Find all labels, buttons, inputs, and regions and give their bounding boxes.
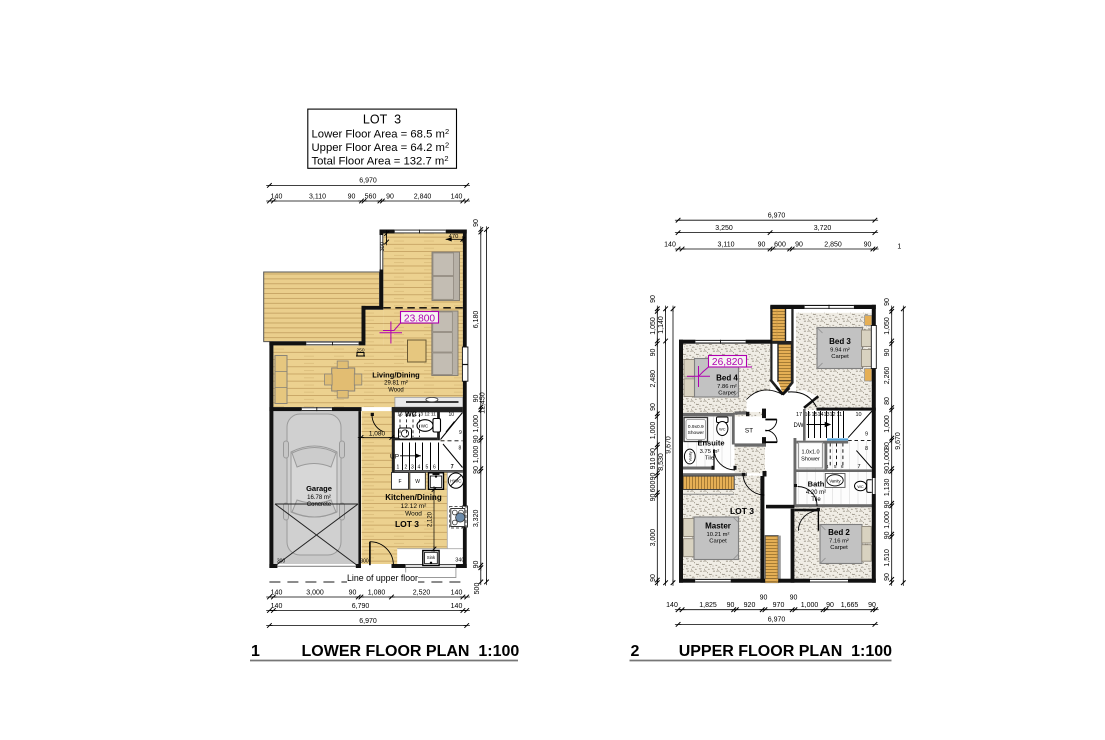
svg-text:W: W: [415, 479, 420, 485]
svg-text:140: 140: [271, 603, 283, 610]
svg-text:910: 910: [650, 458, 657, 470]
svg-text:1,080: 1,080: [368, 589, 386, 596]
svg-text:90: 90: [758, 241, 766, 248]
svg-text:1,140: 1,140: [658, 316, 665, 334]
svg-text:10: 10: [856, 412, 862, 418]
svg-text:90: 90: [826, 602, 834, 609]
svg-text:15: 15: [405, 412, 411, 417]
svg-text:140: 140: [451, 589, 463, 596]
svg-text:90: 90: [650, 448, 657, 456]
svg-text:3,250: 3,250: [715, 225, 733, 232]
svg-text:HWC: HWC: [450, 479, 462, 485]
svg-text:90: 90: [349, 589, 357, 596]
svg-text:90: 90: [884, 466, 891, 474]
svg-text:9: 9: [459, 430, 462, 436]
svg-text:2,120: 2,120: [427, 511, 433, 527]
svg-text:6,970: 6,970: [768, 212, 786, 219]
svg-text:90: 90: [650, 403, 657, 411]
svg-text:8: 8: [459, 446, 462, 452]
svg-text:9: 9: [865, 432, 868, 438]
svg-text:90: 90: [884, 349, 891, 357]
svg-text:2,850: 2,850: [824, 241, 842, 248]
svg-text:3: 3: [411, 465, 414, 471]
svg-text:2: 2: [405, 465, 408, 471]
svg-text:90: 90: [650, 473, 657, 481]
svg-text:600: 600: [774, 241, 786, 248]
svg-text:1,050: 1,050: [884, 317, 891, 335]
svg-text:300: 300: [277, 559, 286, 565]
svg-text:11: 11: [837, 412, 843, 418]
svg-text:1,000: 1,000: [884, 511, 891, 529]
svg-text:1,050: 1,050: [650, 317, 657, 335]
svg-text:26,820: 26,820: [712, 357, 743, 368]
svg-text:2,480: 2,480: [650, 370, 657, 388]
svg-text:300: 300: [380, 242, 386, 251]
svg-text:3,000: 3,000: [306, 589, 324, 596]
svg-text:Wood: Wood: [388, 388, 404, 394]
svg-text:3.75 m²: 3.75 m²: [700, 449, 720, 455]
svg-text:1,000: 1,000: [884, 415, 891, 433]
svg-text:Upper Floor Area = 64.2 m2: Upper Floor Area = 64.2 m2: [312, 141, 450, 155]
svg-text:Shower: Shower: [801, 457, 820, 463]
svg-text:600: 600: [650, 481, 657, 493]
svg-text:Concrete: Concrete: [307, 502, 332, 508]
svg-text:Line of upper floor: Line of upper floor: [347, 573, 418, 583]
svg-text:13: 13: [418, 412, 424, 417]
svg-text:WC: WC: [857, 485, 864, 489]
svg-text:80: 80: [884, 397, 891, 405]
svg-text:1,000: 1,000: [884, 448, 891, 466]
svg-text:29.81 m²: 29.81 m²: [384, 381, 408, 387]
svg-text:LOT 3: LOT 3: [363, 113, 401, 127]
svg-text:560: 560: [365, 193, 377, 200]
svg-text:Kitchen/Dining: Kitchen/Dining: [385, 493, 442, 502]
svg-text:6,970: 6,970: [768, 617, 786, 624]
svg-text:Sink: Sink: [427, 555, 436, 560]
svg-text:Lower Floor Area = 68.5 m2: Lower Floor Area = 68.5 m2: [312, 127, 450, 141]
svg-text:UP: UP: [390, 454, 399, 461]
svg-text:1: 1: [251, 643, 260, 660]
svg-text:UPPER FLOOR PLAN 1:100: UPPER FLOOR PLAN 1:100: [679, 643, 892, 660]
svg-text:Carpet: Carpet: [830, 545, 848, 551]
svg-text:140: 140: [451, 603, 463, 610]
svg-text:9,670: 9,670: [666, 436, 673, 454]
svg-text:500: 500: [474, 583, 481, 595]
svg-text:90: 90: [650, 295, 657, 303]
svg-text:4.20 m²: 4.20 m²: [806, 490, 826, 496]
svg-text:8,530: 8,530: [658, 453, 665, 471]
svg-text:12,450: 12,450: [479, 392, 486, 414]
svg-text:4: 4: [418, 465, 421, 471]
svg-text:3,320: 3,320: [473, 510, 480, 528]
svg-text:340: 340: [455, 558, 464, 564]
svg-text:1: 1: [397, 465, 400, 471]
svg-text:Garage: Garage: [306, 484, 332, 493]
svg-text:Living/Dining: Living/Dining: [372, 371, 420, 380]
svg-text:LOT 3: LOT 3: [395, 519, 419, 529]
svg-text:Shower: Shower: [688, 430, 705, 436]
svg-text:140: 140: [271, 589, 283, 596]
svg-text:ST: ST: [745, 428, 753, 435]
svg-text:1,665: 1,665: [841, 602, 859, 609]
svg-text:11: 11: [431, 412, 436, 417]
svg-text:6,970: 6,970: [359, 178, 377, 185]
svg-text:WC: WC: [719, 427, 726, 431]
svg-text:470: 470: [449, 234, 459, 240]
svg-text:90: 90: [884, 531, 891, 539]
svg-text:8: 8: [865, 446, 868, 452]
svg-text:6,790: 6,790: [352, 603, 370, 610]
svg-text:16.78 m²: 16.78 m²: [307, 495, 331, 501]
svg-text:90: 90: [864, 241, 872, 248]
svg-text:Tile: Tile: [811, 497, 821, 503]
svg-text:2: 2: [631, 643, 640, 660]
svg-text:7: 7: [858, 464, 861, 470]
svg-text:Bath: Bath: [808, 480, 825, 489]
svg-text:1,825: 1,825: [699, 602, 717, 609]
svg-text:3,110: 3,110: [718, 241, 735, 248]
svg-text:6: 6: [433, 465, 436, 471]
svg-text:970: 970: [773, 602, 785, 609]
svg-text:Wood: Wood: [405, 511, 422, 518]
svg-text:9,670: 9,670: [895, 432, 902, 450]
svg-text:3,000: 3,000: [650, 529, 657, 547]
svg-text:Master: Master: [705, 522, 731, 531]
svg-text:140: 140: [666, 602, 678, 609]
svg-text:12: 12: [425, 412, 431, 417]
svg-text:1,080: 1,080: [369, 431, 386, 438]
svg-text:1,130: 1,130: [884, 478, 891, 496]
svg-text:1: 1: [897, 244, 901, 251]
svg-text:90: 90: [650, 574, 657, 582]
svg-text:23.800: 23.800: [404, 313, 435, 324]
svg-text:F: F: [398, 479, 401, 485]
svg-text:Bed 3: Bed 3: [829, 337, 851, 346]
svg-text:140: 140: [664, 241, 676, 248]
svg-text:14: 14: [412, 412, 418, 417]
svg-text:90: 90: [760, 595, 768, 602]
svg-text:0.9x0.9: 0.9x0.9: [688, 424, 704, 430]
svg-text:140: 140: [451, 193, 463, 200]
svg-text:7: 7: [451, 465, 454, 471]
svg-text:1,000: 1,000: [801, 602, 819, 609]
svg-text:10.21 m²: 10.21 m²: [707, 532, 730, 538]
svg-text:1,000: 1,000: [473, 415, 480, 433]
svg-text:Carpet: Carpet: [709, 538, 727, 544]
svg-text:6,970: 6,970: [359, 618, 377, 625]
svg-text:17: 17: [796, 412, 802, 418]
svg-text:3,720: 3,720: [814, 225, 832, 232]
svg-text:90: 90: [650, 349, 657, 357]
svg-text:90: 90: [790, 595, 798, 602]
svg-text:10: 10: [449, 412, 455, 418]
svg-text:DW: DW: [794, 423, 804, 429]
svg-text:12.12 m²: 12.12 m²: [401, 503, 427, 510]
svg-text:Bed 4: Bed 4: [716, 374, 738, 383]
svg-text:WC: WC: [421, 424, 429, 429]
svg-text:90: 90: [473, 435, 480, 443]
svg-text:Tile: Tile: [705, 455, 714, 461]
svg-text:90: 90: [884, 573, 891, 581]
svg-text:90: 90: [473, 219, 480, 227]
svg-text:90: 90: [795, 241, 803, 248]
svg-text:Bed 2: Bed 2: [828, 528, 850, 537]
svg-text:Ensuite: Ensuite: [697, 439, 724, 448]
svg-text:90: 90: [650, 494, 657, 502]
svg-text:12: 12: [830, 412, 836, 418]
svg-text:9.94 m²: 9.94 m²: [830, 347, 850, 353]
svg-text:1,000: 1,000: [650, 422, 657, 440]
svg-text:300: 300: [360, 559, 369, 565]
svg-text:1,510: 1,510: [884, 549, 891, 567]
svg-text:90: 90: [348, 193, 356, 200]
svg-text:7.86 m²: 7.86 m²: [717, 384, 737, 390]
svg-text:140: 140: [271, 193, 283, 200]
svg-text:Carpet: Carpet: [831, 354, 849, 360]
svg-text:90: 90: [884, 501, 891, 509]
svg-text:90: 90: [473, 466, 480, 474]
svg-text:920: 920: [744, 602, 756, 609]
svg-text:2,840: 2,840: [414, 193, 432, 200]
svg-text:90: 90: [868, 602, 876, 609]
svg-text:7.16 m²: 7.16 m²: [829, 538, 849, 544]
svg-text:1,000: 1,000: [473, 446, 480, 464]
svg-text:5: 5: [426, 465, 429, 471]
svg-text:6,180: 6,180: [473, 311, 480, 329]
svg-text:1.0x1.0: 1.0x1.0: [801, 450, 819, 456]
svg-text:Vanity: Vanity: [829, 478, 841, 483]
svg-text:Total Floor Area = 132.7 m2: Total Floor Area = 132.7 m2: [312, 154, 449, 168]
svg-text:Carpet: Carpet: [718, 390, 736, 396]
svg-text:90: 90: [473, 561, 480, 569]
svg-text:Vanity: Vanity: [688, 451, 692, 461]
svg-text:90: 90: [386, 193, 394, 200]
svg-text:2,520: 2,520: [413, 589, 431, 596]
svg-text:LOWER FLOOR PLAN 1:100: LOWER FLOOR PLAN 1:100: [302, 643, 520, 660]
svg-text:3,110: 3,110: [309, 193, 326, 200]
svg-text:LOT 3: LOT 3: [730, 506, 754, 516]
svg-text:90: 90: [884, 298, 891, 306]
svg-text:90: 90: [727, 602, 735, 609]
svg-text:2,260: 2,260: [884, 367, 891, 385]
svg-text:16: 16: [398, 412, 404, 417]
